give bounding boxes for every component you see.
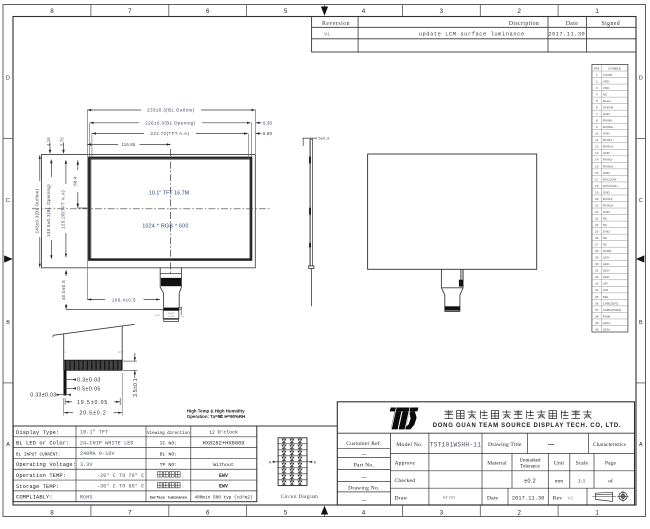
svg-text:31: 31 — [595, 269, 599, 273]
svg-text:2: 2 — [596, 79, 598, 83]
svg-text:68.4: 68.4 — [72, 176, 77, 186]
svg-text:EWV: EWV — [219, 484, 228, 490]
svg-text:38: 38 — [595, 314, 599, 318]
svg-text:GND: GND — [603, 210, 611, 214]
svg-text:-30° C TO 80° C: -30° C TO 80° C — [97, 484, 144, 490]
svg-text:SEL: SEL — [603, 295, 609, 299]
svg-text:143±0.3(BL Outline): 143±0.3(BL Outline) — [34, 188, 39, 233]
svg-text:36: 36 — [595, 301, 599, 305]
svg-text:of: of — [608, 477, 613, 484]
svg-text:3: 3 — [440, 8, 444, 15]
svg-text:NC: NC — [603, 236, 608, 240]
svg-text:RXIN0+: RXIN0+ — [603, 125, 614, 129]
svg-text:233±0.3(BL Outline): 233±0.3(BL Outline) — [147, 108, 195, 113]
svg-text:RXCLKIN+: RXCLKIN+ — [603, 184, 618, 188]
svg-text:3.5±0.1: 3.5±0.1 — [133, 378, 139, 397]
svg-text:8: 8 — [50, 8, 54, 15]
svg-text:4: 4 — [362, 510, 366, 517]
svg-text:B: B — [639, 320, 643, 326]
svg-text:RXCLKIN-: RXCLKIN- — [603, 177, 617, 181]
svg-text:12 O’clock: 12 O’clock — [209, 430, 238, 436]
svg-text:LED-: LED- — [603, 269, 610, 273]
svg-text:3: 3 — [596, 86, 598, 90]
svg-text:CABC(PWM): CABC(PWM) — [603, 308, 621, 312]
svg-text:update LCM surface luminance: update LCM surface luminance — [419, 32, 525, 38]
svg-text:U/D: U/D — [603, 288, 609, 292]
svg-text:2017.11.30: 2017.11.30 — [548, 32, 585, 38]
svg-text:40: 40 — [595, 327, 599, 331]
svg-text:9: 9 — [596, 125, 598, 129]
svg-text:240MA 9-10V: 240MA 9-10V — [80, 451, 115, 457]
svg-text:7: 7 — [596, 112, 598, 116]
svg-text:CT104: CT104 — [168, 316, 175, 318]
svg-text:Part No.: Part No. — [354, 462, 375, 468]
svg-text:LED+: LED+ — [603, 321, 611, 325]
svg-text:NC: NC — [603, 223, 608, 227]
svg-text:Date: Date — [487, 496, 499, 502]
svg-text:PIN: PIN — [594, 67, 599, 71]
svg-text:18: 18 — [595, 184, 599, 188]
svg-text:GND: GND — [603, 230, 611, 234]
svg-text:Page: Page — [605, 461, 617, 467]
svg-text:27: 27 — [595, 243, 599, 247]
svg-text:VCOM: VCOM — [603, 73, 613, 77]
svg-text:A: A — [6, 442, 10, 448]
svg-text:6.35: 6.35 — [263, 121, 273, 126]
svg-text:Viewing direction: Viewing direction — [147, 431, 190, 436]
svg-text:26: 26 — [595, 236, 599, 240]
svg-text:1:1: 1:1 — [578, 478, 586, 484]
svg-text:DONG GUAN TEAM SOURCE DISPLAY: DONG GUAN TEAM SOURCE DISPLAY TECH. CO, … — [433, 423, 622, 429]
svg-text:Operation TEMP:: Operation TEMP: — [16, 473, 66, 479]
svg-text:—: — — [361, 474, 367, 480]
svg-text:5: 5 — [596, 99, 598, 103]
svg-text:LED+: LED+ — [603, 327, 611, 331]
svg-text:GND: GND — [603, 151, 611, 155]
svg-text:Discription: Discription — [509, 21, 539, 27]
svg-text:125.28(TFT A.A): 125.28(TFT A.A) — [61, 190, 66, 229]
svg-text:A: A — [269, 461, 272, 465]
svg-text:L/R: L/R — [603, 282, 609, 286]
svg-text:32: 32 — [595, 275, 599, 279]
svg-text:6: 6 — [596, 106, 598, 110]
svg-text:Characteristics: Characteristics — [593, 442, 626, 448]
svg-text:D: D — [6, 76, 10, 82]
svg-text:15: 15 — [595, 164, 599, 168]
svg-text:0.33±0.03: 0.33±0.03 — [30, 393, 56, 399]
svg-text:222.72(TFT A.A): 222.72(TFT A.A) — [150, 131, 189, 136]
svg-text:24: 24 — [595, 223, 599, 227]
svg-text:°C H=90%RH: °C H=90%RH — [218, 414, 245, 419]
svg-text:Rev: Rev — [553, 496, 563, 502]
svg-text:400min 500 typ (cd/m2): 400min 500 typ (cd/m2) — [195, 495, 253, 500]
svg-text:3.3V: 3.3V — [80, 462, 93, 468]
svg-text:TP NO:: TP NO: — [160, 462, 178, 468]
svg-text:17: 17 — [595, 177, 599, 181]
svg-text:EWV: EWV — [219, 473, 228, 479]
svg-text:VDD: VDD — [603, 79, 610, 83]
svg-text:RXIN0-: RXIN0- — [603, 119, 613, 123]
svg-text:LED-: LED- — [603, 256, 610, 260]
svg-text:Circuit Diagram: Circuit Diagram — [281, 495, 318, 500]
svg-text:Surface luminance: Surface luminance — [150, 496, 188, 501]
svg-text:24-CHIP WHITE LED: 24-CHIP WHITE LED — [80, 440, 134, 446]
svg-text:116.65: 116.65 — [121, 142, 135, 147]
svg-text:FH12: FH12 — [155, 315, 161, 317]
svg-text:8: 8 — [596, 119, 598, 123]
svg-text::: : — [182, 485, 183, 490]
svg-text:GND: GND — [603, 171, 611, 175]
svg-text:B: B — [6, 320, 10, 326]
svg-text:C: C — [639, 198, 643, 204]
svg-text:Aron: Aron — [443, 495, 455, 501]
svg-text:Checked: Checked — [395, 478, 416, 484]
svg-text:29: 29 — [595, 256, 599, 260]
svg-text:CABC(EN): CABC(EN) — [603, 301, 618, 305]
svg-text:7: 7 — [128, 8, 132, 15]
svg-text:16: 16 — [595, 171, 599, 175]
svg-text:K: K — [314, 461, 317, 465]
svg-text:A: A — [639, 442, 643, 448]
svg-text:RXIN2+: RXIN2+ — [603, 164, 614, 168]
svg-text:Reset: Reset — [603, 99, 611, 103]
svg-text:20.5±0.2: 20.5±0.2 — [79, 411, 106, 417]
svg-text:35: 35 — [595, 295, 599, 299]
svg-text:39: 39 — [595, 321, 599, 325]
svg-text:12: 12 — [595, 145, 599, 149]
svg-text:0.3±0.03: 0.3±0.03 — [77, 378, 101, 384]
svg-text:SYMBLE: SYMBLE — [608, 67, 621, 71]
svg-text:30: 30 — [595, 262, 599, 266]
svg-text:RXIN1-: RXIN1- — [603, 138, 613, 142]
svg-text:14: 14 — [595, 158, 599, 162]
svg-text:AVDD: AVDD — [603, 249, 612, 253]
svg-text:BL LED or Color:: BL LED or Color: — [16, 441, 69, 447]
svg-text:8: 8 — [50, 510, 54, 517]
svg-text:6: 6 — [206, 510, 210, 517]
svg-text:Unmarked: Unmarked — [519, 459, 541, 464]
svg-text:LED-: LED- — [603, 275, 610, 279]
svg-text:19.5±0.05: 19.5±0.05 — [77, 400, 108, 406]
svg-text:-20° C TO 70° C: -20° C TO 70° C — [97, 473, 144, 479]
svg-text:GND: GND — [603, 132, 611, 136]
svg-text:High Temp & High Humidity: High Temp & High Humidity — [187, 408, 245, 413]
svg-text:4: 4 — [596, 92, 598, 96]
svg-text:10: 10 — [595, 132, 599, 136]
svg-text:1: 1 — [596, 73, 598, 77]
svg-text:106.4±0.5: 106.4±0.5 — [112, 297, 136, 302]
svg-text:V1: V1 — [324, 31, 330, 37]
svg-text:19: 19 — [595, 190, 599, 194]
svg-text:IC NO:: IC NO: — [160, 441, 178, 447]
svg-text:LED-: LED- — [603, 262, 610, 266]
svg-text:22: 22 — [595, 210, 599, 214]
svg-text:RXIN1+: RXIN1+ — [603, 145, 614, 149]
svg-text:TST101WSHH-11: TST101WSHH-11 — [430, 441, 481, 448]
svg-text:Display Type:: Display Type: — [16, 430, 59, 436]
svg-text:Operating Voltage:: Operating Voltage: — [16, 462, 76, 468]
svg-text:2017.11.30: 2017.11.30 — [512, 496, 545, 502]
svg-text:40.0±0.5: 40.0±0.5 — [61, 280, 66, 300]
svg-text:Draw: Draw — [395, 496, 408, 502]
svg-text:Reversion: Reversion — [322, 21, 350, 27]
svg-text:1024 * RGB * 600: 1024 * RGB * 600 — [142, 224, 188, 230]
svg-text:NC: NC — [603, 92, 608, 96]
svg-text:6: 6 — [206, 8, 210, 15]
svg-text:34: 34 — [595, 288, 599, 292]
svg-text:1: 1 — [595, 8, 599, 15]
svg-text:10.1" TFT 16.7M: 10.1" TFT 16.7M — [149, 191, 189, 197]
svg-text:Tolerance: Tolerance — [520, 465, 540, 470]
svg-text:mm: mm — [555, 478, 564, 484]
svg-text:Drawing No.: Drawing No. — [348, 485, 380, 491]
svg-text:2: 2 — [517, 510, 521, 517]
svg-text:NC: NC — [603, 216, 608, 220]
svg-text:5: 5 — [284, 8, 288, 15]
svg-text:3: 3 — [440, 510, 444, 517]
svg-text:—: — — [361, 452, 367, 458]
svg-text:33: 33 — [595, 282, 599, 286]
svg-text:226±0.3(BL Opening): 226±0.3(BL Opening) — [145, 121, 195, 126]
svg-text:11: 11 — [595, 138, 598, 142]
svg-text:5: 5 — [284, 510, 288, 517]
svg-text:RXIN3+: RXIN3+ — [603, 203, 614, 207]
svg-text:BL NO:: BL NO: — [160, 451, 178, 457]
svg-text:37: 37 — [595, 308, 599, 312]
svg-text:Without: Without — [213, 462, 234, 468]
svg-text:Drawing Title: Drawing Title — [488, 442, 522, 448]
svg-text:Material: Material — [487, 461, 507, 467]
svg-text:RXIN3-: RXIN3- — [603, 197, 613, 201]
svg-text:20: 20 — [595, 197, 599, 201]
svg-text:RXIN2-: RXIN2- — [603, 158, 613, 162]
svg-text:Unit: Unit — [554, 461, 565, 467]
svg-text:Model No.: Model No. — [396, 442, 423, 448]
svg-text:VDD: VDD — [603, 86, 610, 90]
svg-text:V1: V1 — [568, 496, 574, 502]
svg-text:Signed: Signed — [602, 21, 621, 27]
svg-text:1: 1 — [595, 510, 599, 517]
svg-text:21: 21 — [595, 203, 599, 207]
svg-text:Storage TEMP:: Storage TEMP: — [16, 484, 59, 490]
svg-text:---: --- — [548, 441, 554, 448]
svg-text:C: C — [6, 198, 10, 204]
svg-text:23: 23 — [595, 216, 599, 220]
svg-text:10.1" TFT: 10.1" TFT — [80, 430, 108, 436]
svg-text:±0.2: ±0.2 — [524, 478, 536, 484]
svg-text:GND: GND — [603, 112, 611, 116]
svg-text:D: D — [639, 76, 643, 82]
svg-text:GND: GND — [603, 190, 611, 194]
svg-text:COMPLIABLY:: COMPLIABLY: — [16, 495, 53, 501]
svg-text:0.5±0.05: 0.5±0.05 — [77, 386, 101, 392]
svg-text:6.99: 6.99 — [263, 131, 273, 136]
svg-text:NC: NC — [603, 243, 608, 247]
svg-text:RoHS: RoHS — [80, 494, 93, 500]
svg-text:—: — — [361, 497, 367, 503]
svg-text:4: 4 — [362, 8, 366, 15]
svg-text:Date: Date — [566, 21, 579, 27]
svg-text:Approve: Approve — [395, 461, 416, 467]
svg-text:Custumer Ref.: Custumer Ref. — [346, 440, 382, 447]
svg-text:135.5±0.3(BL Opening): 135.5±0.3(BL Opening) — [46, 184, 51, 237]
svg-text:BL INPUT CURRENT:: BL INPUT CURRENT: — [16, 453, 60, 457]
svg-text:7: 7 — [128, 510, 132, 517]
svg-text:28: 28 — [595, 249, 599, 253]
svg-text:STBYB: STBYB — [603, 106, 613, 110]
svg-text::: : — [182, 474, 183, 479]
svg-text:PWM: PWM — [603, 314, 611, 318]
svg-text:25: 25 — [595, 230, 599, 234]
svg-text:13: 13 — [595, 151, 599, 155]
svg-text:Scale: Scale — [576, 461, 589, 467]
svg-text:4.5±0.3: 4.5±0.3 — [315, 136, 330, 141]
svg-text:2: 2 — [517, 8, 521, 15]
svg-text:HX8282+HX8689: HX8282+HX8689 — [202, 440, 244, 446]
